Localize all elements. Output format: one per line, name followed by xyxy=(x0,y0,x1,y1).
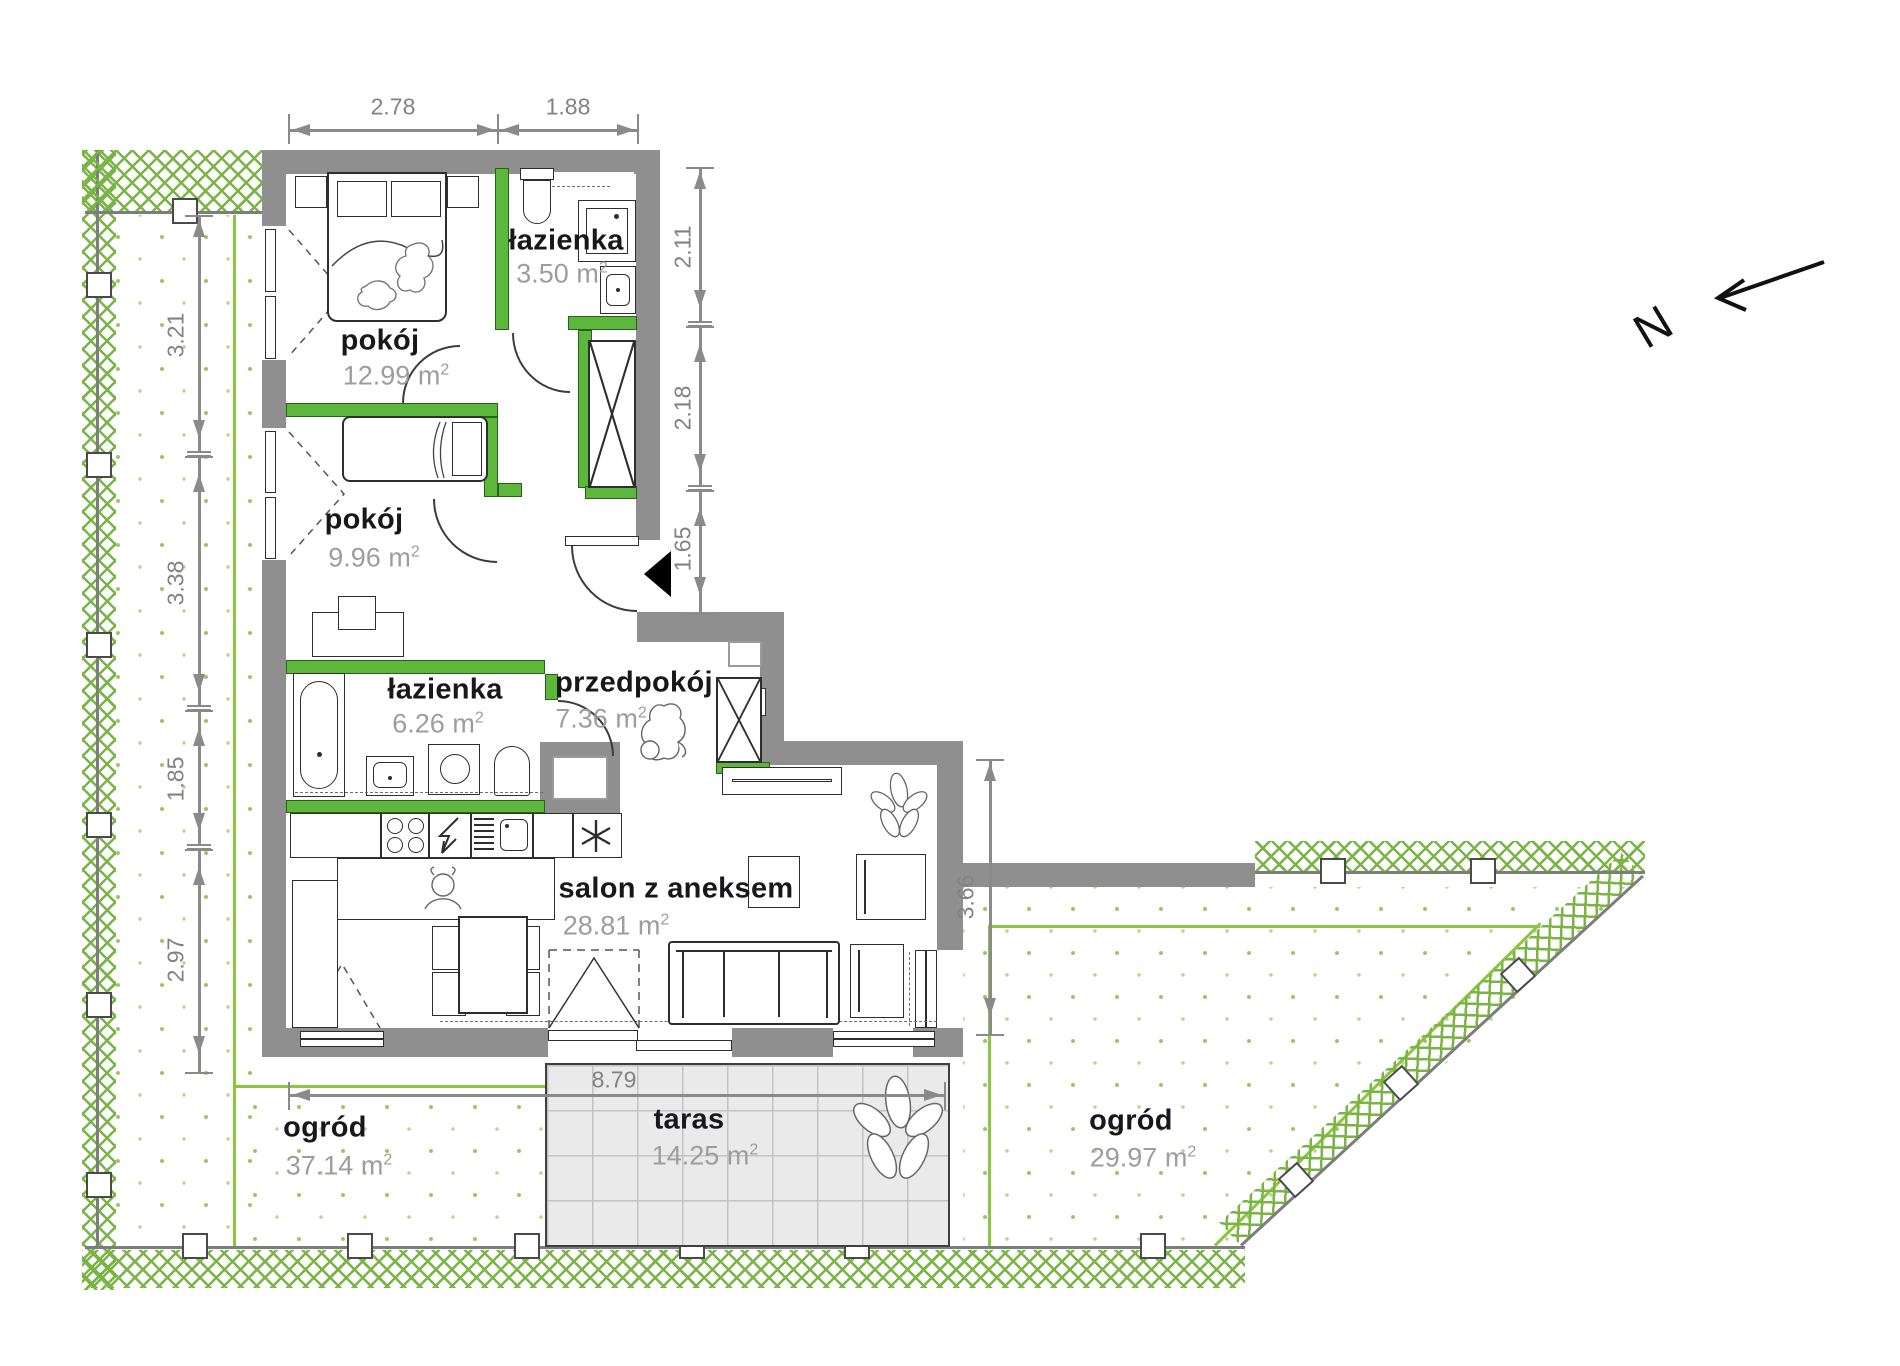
dimension-arrow xyxy=(193,728,205,746)
partition-wall xyxy=(498,483,522,497)
partition-wall xyxy=(286,660,545,674)
dimension-arrow xyxy=(694,171,706,189)
sliding-door-leaf xyxy=(636,1040,732,1051)
shower-drain xyxy=(614,214,619,219)
dimension-label: 1.88 xyxy=(546,94,591,121)
stove-burner xyxy=(387,818,403,834)
garden-boundary-line xyxy=(233,1085,545,1088)
counter-divider xyxy=(470,814,472,857)
dimension-label: 2.78 xyxy=(371,94,416,121)
dimension-tick xyxy=(976,1034,1004,1036)
entrance-door-leaf xyxy=(565,536,639,546)
garden-boundary-line xyxy=(988,925,1540,928)
dimension-break xyxy=(688,485,712,491)
north-label: N xyxy=(1624,295,1682,360)
wall xyxy=(636,150,660,540)
fence-post xyxy=(1140,1233,1166,1259)
toilet-tank xyxy=(520,168,554,180)
armchair-back-line xyxy=(864,860,866,914)
sofa xyxy=(668,941,840,1025)
dimension-break xyxy=(688,321,712,327)
dimension-line xyxy=(198,215,201,1072)
dimension-arrow xyxy=(984,998,996,1016)
stove-burner xyxy=(387,837,403,853)
window-sill-dashed xyxy=(909,952,910,1026)
bedroom2-door-arc xyxy=(433,499,497,563)
washbasin-bowl xyxy=(373,762,407,788)
tall-cabinet xyxy=(292,880,338,1028)
counter-divider xyxy=(380,814,382,857)
room-name: łazienka xyxy=(508,225,623,258)
dimension-arrow xyxy=(477,124,495,136)
window-swing-dashed xyxy=(288,428,348,560)
dimension-arrow xyxy=(694,290,706,308)
dimension-label: 3.38 xyxy=(163,561,190,606)
wardrobe-icon xyxy=(588,340,636,488)
dimension-arrow xyxy=(984,763,996,781)
counter-divider xyxy=(532,814,534,857)
salon-window-mullion xyxy=(833,1038,935,1040)
dimension-arrow xyxy=(694,344,706,362)
counter-divider xyxy=(572,814,574,857)
stove-burner xyxy=(408,818,424,834)
dimension-tick xyxy=(944,1082,946,1110)
dimension-arrow xyxy=(193,1036,205,1054)
entrance-marker-icon xyxy=(644,551,671,597)
dimension-tick xyxy=(288,114,290,144)
wall xyxy=(637,612,784,642)
bathtub-inner xyxy=(300,681,338,789)
dimension-label: 8.79 xyxy=(592,1067,637,1094)
dimension-break xyxy=(187,451,211,457)
person-and-dog-sketch xyxy=(352,238,444,318)
electric-symbol-icon xyxy=(432,815,468,856)
window-sash xyxy=(265,296,276,359)
wardrobe-icon xyxy=(716,677,762,763)
partition-wall xyxy=(286,403,498,417)
north-arrow-icon xyxy=(1700,248,1830,316)
armchair-back-line xyxy=(858,950,860,1012)
nightstand xyxy=(295,176,327,208)
dimension-label: 2.11 xyxy=(670,225,697,268)
room-name: salon z aneksem xyxy=(559,873,794,906)
dimension-tick xyxy=(637,114,639,144)
plant-icon xyxy=(868,768,930,846)
room-name: przedpokój xyxy=(555,667,713,700)
dishwasher-ribs xyxy=(474,818,494,854)
room-area: 28.81 m2 xyxy=(563,911,670,942)
sliding-door-leaf xyxy=(548,1030,638,1041)
fence-line xyxy=(1255,871,1645,874)
fence-hatch xyxy=(82,150,116,1290)
water-heater-icon xyxy=(494,746,530,796)
dimension-arrow xyxy=(924,1089,942,1101)
room-area: 9.96 m2 xyxy=(328,543,419,574)
stove-burner xyxy=(408,837,424,853)
partition-wall xyxy=(286,800,545,813)
window-sash xyxy=(265,431,276,493)
room-area: 6.26 m2 xyxy=(392,709,483,740)
partition-wall xyxy=(495,168,509,330)
dimension-break xyxy=(187,705,211,711)
bathtub-drain xyxy=(317,752,322,757)
fence-post xyxy=(86,632,112,658)
dimension-arrow xyxy=(501,124,519,136)
toilet-icon xyxy=(523,180,551,224)
fence-hatch xyxy=(1255,841,1645,871)
garden-boundary-line xyxy=(233,215,236,1247)
nightstand xyxy=(447,176,479,208)
fence-post xyxy=(86,992,112,1018)
partition-wall xyxy=(568,316,637,330)
pillow xyxy=(452,422,482,476)
fence-post xyxy=(1320,858,1346,884)
armchair xyxy=(856,854,926,920)
sofa-cushion-divider xyxy=(778,951,780,1017)
dimension-label: 3.21 xyxy=(163,313,190,358)
sideboard-handle xyxy=(732,779,832,782)
wall xyxy=(732,1028,833,1057)
sofa-cushion-divider xyxy=(723,951,725,1017)
wall xyxy=(438,1028,548,1057)
dimension-break xyxy=(187,844,211,850)
fence-post xyxy=(347,1233,373,1259)
room-area: 7.36 m2 xyxy=(555,704,646,735)
dimension-tick xyxy=(185,215,213,217)
entrance-door-arc xyxy=(571,546,637,612)
dimension-arrow xyxy=(193,674,205,692)
fence-post xyxy=(86,812,112,838)
blanket-fold xyxy=(410,420,450,480)
dimension-tick xyxy=(686,613,714,615)
fence-post xyxy=(1470,858,1496,884)
sofa-back-line xyxy=(676,950,832,952)
kitchen-sink-icon xyxy=(500,819,528,851)
sofa-armrest-line xyxy=(826,950,828,1018)
fence-post xyxy=(514,1233,540,1259)
sofa-armrest-line xyxy=(682,950,684,1018)
room-name: pokój xyxy=(341,325,420,358)
fixture-axis-dashed xyxy=(552,186,610,187)
dimension-arrow xyxy=(292,1089,310,1101)
dimension-arrow xyxy=(193,867,205,885)
bathroom-door-arc xyxy=(512,333,570,393)
dimension-line xyxy=(989,760,992,1035)
fixture-axis-dashed xyxy=(295,792,543,793)
counter-divider xyxy=(428,814,430,857)
pillow xyxy=(337,181,387,217)
pillow xyxy=(391,181,441,217)
dimension-arrow xyxy=(193,219,205,237)
dimension-tick xyxy=(185,1072,213,1074)
kitchen-window-mullion xyxy=(300,1038,384,1040)
washbasin-drain xyxy=(388,776,392,780)
fence-post xyxy=(182,1233,208,1259)
dimension-label: 1.85 xyxy=(163,757,190,802)
dimension-arrow xyxy=(193,474,205,492)
kitchen-sink-drain xyxy=(505,824,509,828)
dimension-tick xyxy=(288,1082,290,1110)
cook-figure xyxy=(420,865,466,917)
room-name: ogród xyxy=(283,1112,367,1145)
fridge-icon xyxy=(578,818,614,854)
window-sash xyxy=(265,229,276,292)
wall xyxy=(937,765,963,950)
window-sash xyxy=(265,497,276,559)
dimension-arrow xyxy=(193,420,205,438)
floor-plan: 2.78 1.88 3.21 3.38 1.85 2.97 2.11 2.18 … xyxy=(0,0,1900,1366)
fence-hatch xyxy=(82,1250,1245,1288)
wall xyxy=(784,741,963,765)
bathroom-shelf xyxy=(542,172,634,198)
dimension-line xyxy=(288,129,638,132)
fence-post xyxy=(86,272,112,298)
dimension-tick xyxy=(497,114,499,144)
dimension-label: 3.66 xyxy=(953,875,980,920)
dimension-line xyxy=(288,1094,946,1097)
room-area: 3.50 m2 xyxy=(516,259,607,290)
room-area: 37.14 m2 xyxy=(286,1151,393,1182)
fence-post xyxy=(86,1172,112,1198)
dimension-label: 2.97 xyxy=(163,938,190,983)
dimension-label: 2.18 xyxy=(670,386,697,431)
washbasin-drain xyxy=(616,288,620,292)
dimension-arrow xyxy=(694,454,706,472)
dimension-label: 1.65 xyxy=(670,527,697,572)
room-area: 12.99 m2 xyxy=(343,361,450,392)
room-name: taras xyxy=(654,1104,725,1137)
salon-window-east-mullion xyxy=(925,950,927,1028)
room-name: ogród xyxy=(1089,1105,1173,1138)
dimension-arrow xyxy=(292,124,310,136)
fence-post xyxy=(86,452,112,478)
room-name: łazienka xyxy=(387,674,502,707)
meter-niche xyxy=(728,641,762,667)
dimension-line xyxy=(699,168,702,614)
dimension-tick xyxy=(686,167,714,169)
desk-monitor xyxy=(338,596,376,630)
fence-line xyxy=(96,150,99,1247)
wall-pocket-niche xyxy=(552,756,608,800)
dimension-tick xyxy=(976,759,1004,761)
wall-party xyxy=(963,863,1255,887)
dimension-arrow xyxy=(193,813,205,831)
dimension-arrow xyxy=(694,577,706,595)
room-area: 14.25 m2 xyxy=(652,1141,759,1172)
room-area: 29.97 m2 xyxy=(1090,1143,1197,1174)
dimension-arrow xyxy=(694,508,706,526)
terrace-door-swing xyxy=(548,948,640,1030)
wall xyxy=(262,150,660,174)
washing-machine-drum xyxy=(440,754,470,784)
room-name: pokój xyxy=(325,504,404,537)
dimension-arrow xyxy=(617,124,635,136)
dining-table xyxy=(458,916,528,1014)
